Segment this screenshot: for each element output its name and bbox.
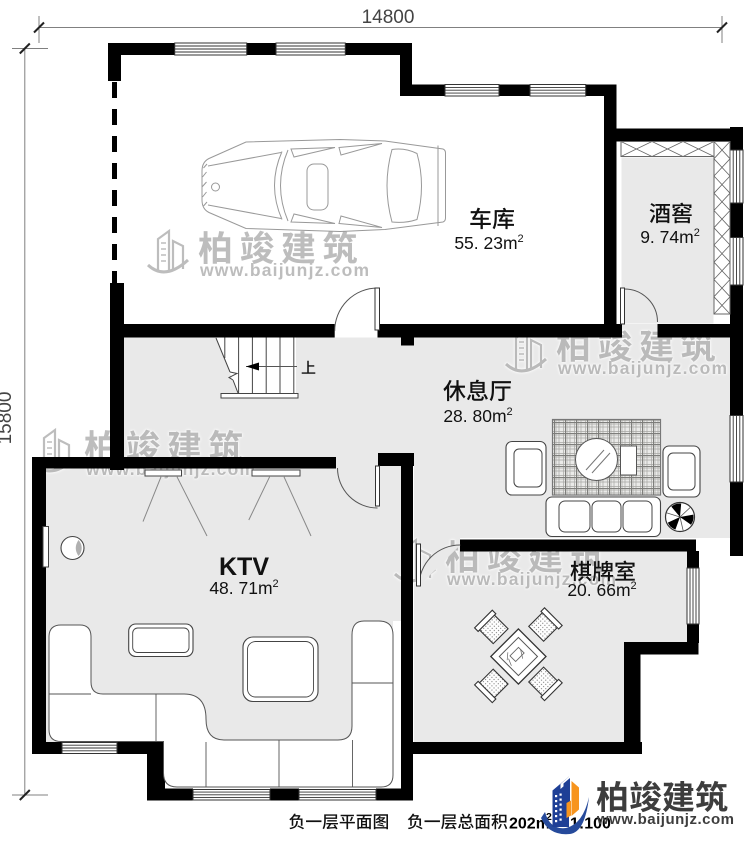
svg-text:48. 71m2: 48. 71m2 — [209, 578, 278, 598]
svg-text:www.baijunjz.com: www.baijunjz.com — [199, 260, 370, 280]
svg-text:14800: 14800 — [362, 7, 415, 28]
svg-text:15800: 15800 — [0, 392, 16, 445]
svg-text:20. 66m2: 20. 66m2 — [567, 580, 636, 600]
svg-text:55. 23m2: 55. 23m2 — [454, 233, 523, 253]
svg-text:28. 80m2: 28. 80m2 — [443, 406, 512, 426]
svg-text:www.baijunjz.com: www.baijunjz.com — [596, 811, 734, 828]
svg-text:www.baijunjz.com: www.baijunjz.com — [557, 358, 728, 378]
svg-text:KTV: KTV — [219, 553, 269, 581]
svg-text:9. 74m2: 9. 74m2 — [640, 227, 700, 247]
